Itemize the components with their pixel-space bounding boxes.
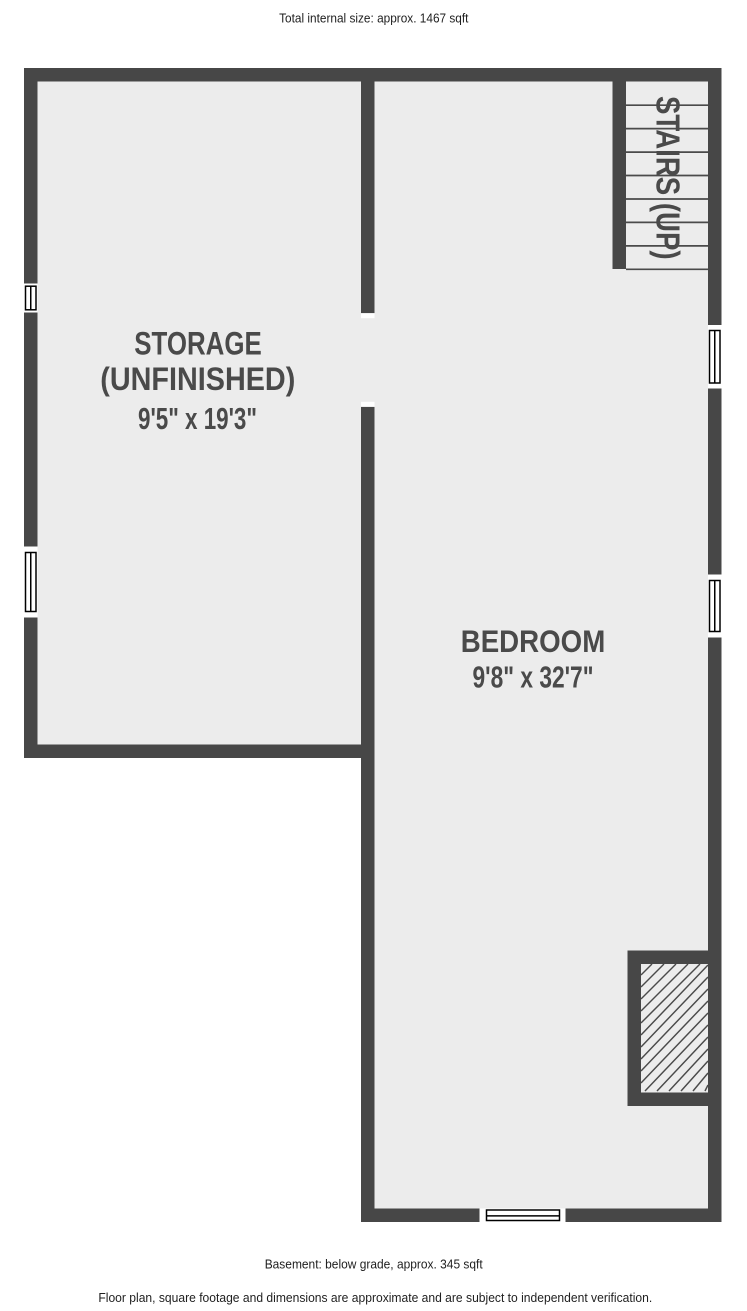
svg-text:STORAGE: STORAGE — [134, 326, 262, 362]
svg-text:STAIRS (UP): STAIRS (UP) — [649, 96, 686, 260]
svg-text:(UNFINISHED): (UNFINISHED) — [100, 361, 295, 397]
svg-text:BEDROOM: BEDROOM — [461, 624, 606, 659]
svg-text:Total internal size: approx. 1: Total internal size: approx. 1467 sqft — [279, 11, 469, 26]
svg-text:9'5" x 19'3": 9'5" x 19'3" — [138, 401, 257, 436]
svg-text:9'8" x 32'7": 9'8" x 32'7" — [473, 659, 594, 694]
svg-text:Basement: below grade, approx.: Basement: below grade, approx. 345 sqft — [265, 1257, 483, 1272]
svg-text:Floor plan, square footage and: Floor plan, square footage and dimension… — [98, 1290, 652, 1305]
